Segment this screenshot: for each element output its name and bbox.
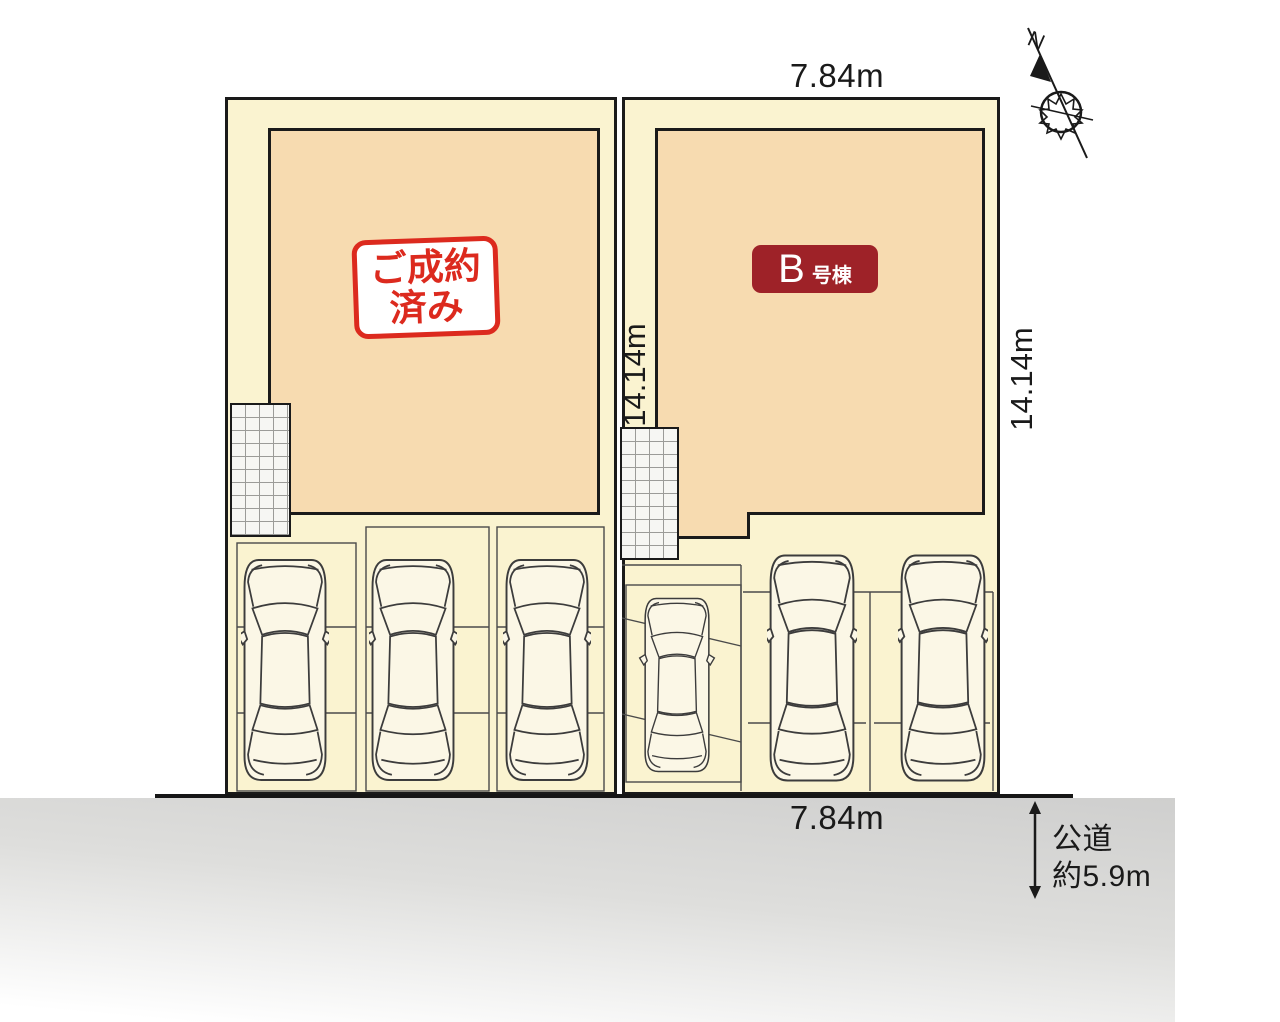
unit-suffix: 号棟 [812, 259, 852, 288]
dimension-inner-depth: 14.14m [617, 315, 653, 435]
road-width-label: 約5.9m [1052, 851, 1151, 895]
sold-stamp-line2: 済み [389, 286, 464, 329]
car-top-view [365, 560, 460, 780]
car-top-view [763, 556, 860, 781]
car-top-view [499, 560, 594, 780]
unit-letter: B [778, 249, 805, 289]
site-plan: N ご成約 済み B 号棟 7.84m 7.84m 14.14m 14.14m … [0, 0, 1280, 1022]
dimension-bottom-width: 7.84m [777, 799, 897, 837]
compass-icon: N [1024, 26, 1093, 158]
sold-stamp: ご成約 済み [351, 235, 500, 339]
cars [237, 556, 991, 781]
north-label: N [1024, 26, 1049, 55]
sold-stamp-line1: ご成約 [369, 246, 481, 290]
dimension-outer-depth: 14.14m [1004, 319, 1040, 439]
road-width-arrow [1029, 801, 1041, 899]
car-top-view-compact [640, 598, 715, 771]
car-top-view [237, 560, 332, 780]
dimension-top-width: 7.84m [777, 57, 897, 95]
unit-b-badge: B 号棟 [752, 245, 878, 293]
car-top-view [894, 556, 991, 781]
